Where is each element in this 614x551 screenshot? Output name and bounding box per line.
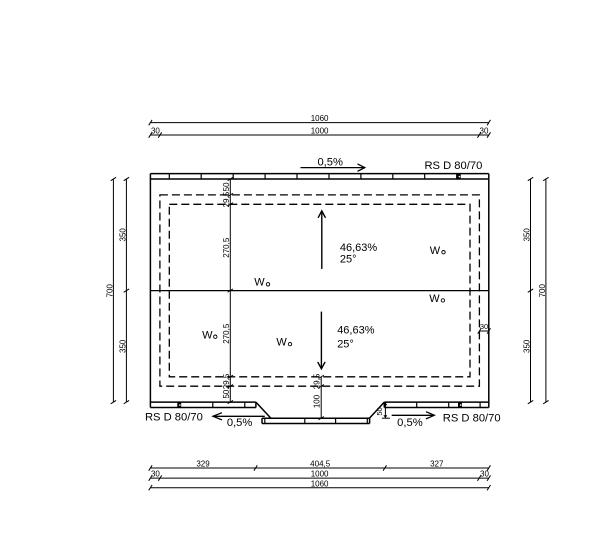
svg-text:329: 329 bbox=[196, 460, 210, 469]
svg-text:RS D 80/70: RS D 80/70 bbox=[424, 160, 482, 172]
svg-text:350: 350 bbox=[523, 339, 532, 353]
svg-text:0,5%: 0,5% bbox=[227, 417, 253, 429]
svg-text:1000: 1000 bbox=[311, 127, 329, 136]
svg-text:25°: 25° bbox=[340, 254, 357, 266]
svg-text:W: W bbox=[276, 337, 287, 349]
svg-text:29,5: 29,5 bbox=[222, 191, 231, 207]
svg-text:350: 350 bbox=[119, 339, 128, 353]
svg-text:30: 30 bbox=[151, 470, 160, 479]
svg-text:W: W bbox=[202, 329, 213, 341]
svg-text:1060: 1060 bbox=[311, 479, 329, 488]
svg-text:30: 30 bbox=[480, 470, 489, 479]
svg-text:700: 700 bbox=[538, 283, 547, 297]
svg-text:50: 50 bbox=[222, 389, 231, 398]
svg-text:404,5: 404,5 bbox=[310, 460, 331, 469]
svg-text:327: 327 bbox=[430, 460, 444, 469]
svg-text:1060: 1060 bbox=[311, 114, 329, 123]
svg-text:50: 50 bbox=[375, 407, 384, 415]
svg-text:30: 30 bbox=[151, 127, 160, 136]
svg-text:29,5: 29,5 bbox=[222, 373, 231, 389]
svg-text:350: 350 bbox=[523, 228, 532, 242]
svg-text:W: W bbox=[429, 293, 440, 305]
svg-text:0,5%: 0,5% bbox=[317, 157, 343, 169]
svg-text:RS D 80/70: RS D 80/70 bbox=[145, 412, 203, 424]
svg-text:RS D 80/70: RS D 80/70 bbox=[443, 412, 501, 424]
svg-text:0,5%: 0,5% bbox=[397, 417, 423, 429]
svg-text:50: 50 bbox=[222, 182, 231, 191]
svg-text:W: W bbox=[430, 245, 441, 257]
svg-text:270,5: 270,5 bbox=[222, 323, 231, 344]
svg-text:30: 30 bbox=[480, 322, 488, 331]
svg-text:100: 100 bbox=[313, 394, 322, 408]
svg-text:46,63%: 46,63% bbox=[337, 324, 375, 336]
svg-text:30: 30 bbox=[480, 127, 489, 136]
svg-text:1000: 1000 bbox=[311, 470, 329, 479]
svg-text:29,5: 29,5 bbox=[313, 373, 322, 389]
svg-text:25°: 25° bbox=[337, 338, 354, 350]
svg-text:350: 350 bbox=[119, 228, 128, 242]
svg-text:W: W bbox=[254, 277, 265, 289]
svg-text:46,63%: 46,63% bbox=[340, 242, 378, 254]
svg-text:270,5: 270,5 bbox=[222, 237, 231, 258]
svg-text:700: 700 bbox=[106, 283, 115, 297]
